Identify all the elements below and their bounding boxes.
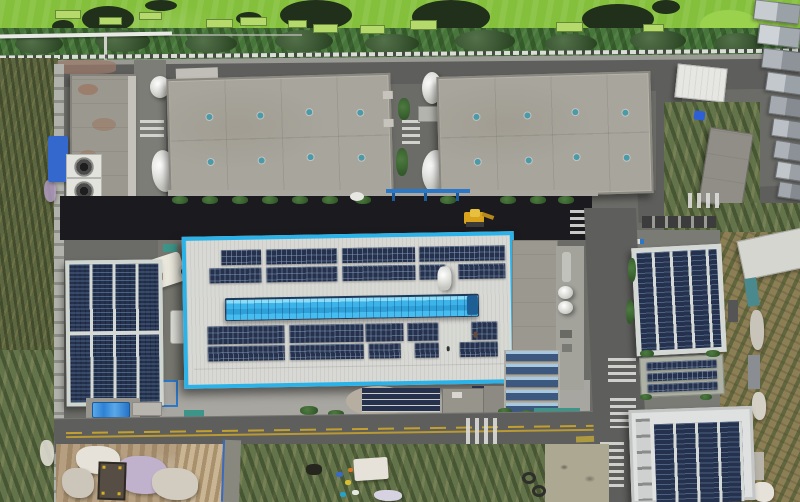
pond-dark-patch xyxy=(652,0,680,14)
gantry-crane-leg xyxy=(424,193,427,201)
pond-platform xyxy=(360,25,385,34)
shrub-row xyxy=(262,196,278,204)
tilted-solar-row xyxy=(506,351,558,361)
skylight-vent xyxy=(306,109,312,115)
tarp-covered-pile xyxy=(62,468,94,498)
skylight-vent xyxy=(622,110,628,116)
tilted-solar-row xyxy=(506,377,558,387)
pond-platform xyxy=(99,17,122,25)
yellow-marker xyxy=(102,466,105,469)
shrub-row xyxy=(500,196,516,204)
pipeline-thin xyxy=(172,34,302,36)
solar-array-row xyxy=(369,343,401,359)
skylight-vent xyxy=(259,157,265,163)
skylight-end-cap xyxy=(467,296,478,315)
round-tank xyxy=(558,286,573,299)
container-roof xyxy=(771,118,800,140)
junk-gray xyxy=(748,355,760,389)
shrub xyxy=(396,148,408,176)
equipment-dark xyxy=(562,344,572,352)
right-low-solar-structure xyxy=(639,354,725,398)
solar-strip xyxy=(647,381,717,392)
roof-vent-box xyxy=(384,119,394,127)
shrub-row xyxy=(172,196,188,204)
aerial-photo-canvas xyxy=(0,0,800,502)
solar-array-row xyxy=(207,325,284,344)
solar-strip xyxy=(646,359,716,370)
shrub xyxy=(626,300,634,324)
cooling-fan-unit xyxy=(66,154,102,178)
annex-roof-central-right xyxy=(512,240,558,352)
round-tank xyxy=(558,301,573,314)
blue-tarp-shelter xyxy=(48,136,68,182)
gantry-crane-leg xyxy=(392,193,395,201)
solar-array-row xyxy=(365,323,403,342)
crosswalk-bottom-road xyxy=(466,418,500,444)
skylight-vent xyxy=(572,109,578,115)
yellow-marker xyxy=(118,466,121,469)
solar-array-row xyxy=(290,344,364,360)
annex-east-wall xyxy=(128,76,136,200)
junk-dark xyxy=(728,300,738,322)
shrub xyxy=(706,350,720,357)
pond-platform xyxy=(556,22,583,32)
roof-seam xyxy=(194,363,506,369)
gantry-crane-leg xyxy=(456,193,459,201)
crosswalk-topright xyxy=(688,193,722,208)
duct xyxy=(562,252,571,282)
satellite-dish xyxy=(350,192,364,201)
skylight-vent xyxy=(574,154,580,160)
crosswalk-right-road xyxy=(608,358,636,384)
solar-array-row xyxy=(208,345,285,361)
white-gatehouse-roof xyxy=(674,63,727,102)
shrub xyxy=(398,98,410,120)
fan-blade-icon xyxy=(74,157,94,177)
debris-dot-cyan xyxy=(340,492,346,497)
pond-platform xyxy=(139,12,162,20)
building-facade xyxy=(636,418,653,500)
pond-platform xyxy=(288,20,307,28)
tree-clump xyxy=(455,30,515,52)
pond-dark-patch xyxy=(145,0,177,11)
skylight-vent xyxy=(307,154,313,160)
shrub xyxy=(640,350,654,357)
skylight-vent xyxy=(624,155,630,161)
shrub-row xyxy=(440,196,456,204)
solar-array-row xyxy=(289,324,363,343)
pond-platform xyxy=(410,20,437,30)
junk-tarp xyxy=(752,392,766,420)
crosswalk-gap-road xyxy=(402,120,420,144)
dumpster-teal xyxy=(163,244,177,252)
white-tarp-square xyxy=(353,457,388,481)
debris-dot-blue xyxy=(336,472,343,477)
solar-array-row xyxy=(221,250,261,266)
tarp-covered-pile xyxy=(152,468,198,500)
central-factory-solar-roof xyxy=(182,231,517,389)
tilted-solar-row xyxy=(506,390,558,400)
coil-ring xyxy=(532,485,546,497)
solar-strip xyxy=(647,370,717,381)
skylight-vent xyxy=(475,159,481,165)
roof-chimney-white xyxy=(437,266,451,290)
solar-array-row xyxy=(458,263,505,279)
tree-clump xyxy=(630,30,686,51)
warehouse-roof-right xyxy=(436,71,653,199)
solar-panel-columns xyxy=(636,249,721,351)
skylight-vent xyxy=(526,157,532,163)
white-shed xyxy=(132,402,162,416)
debris-dot-white xyxy=(352,490,359,495)
solar-array-row xyxy=(415,342,439,357)
gate-fence xyxy=(642,216,716,228)
pond-platform xyxy=(240,17,267,26)
solar-array-row xyxy=(342,247,415,263)
skylight-vent xyxy=(473,114,479,120)
tilted-solar-rack-group xyxy=(504,350,560,416)
coil-ring xyxy=(522,472,536,484)
junk-tarp xyxy=(750,310,764,350)
shrub-row xyxy=(202,196,218,204)
shrub-row xyxy=(530,196,546,204)
solar-array-row xyxy=(266,248,337,264)
skylight-vent xyxy=(208,159,214,165)
shrub xyxy=(700,394,712,400)
pond-platform xyxy=(206,19,233,28)
shrub-row xyxy=(322,196,338,204)
service-path-blue-edge xyxy=(221,440,241,502)
debris-dot-yellow xyxy=(345,480,351,485)
container-roof xyxy=(773,140,800,162)
pond-platform xyxy=(313,24,338,33)
skylight-vent xyxy=(359,155,365,161)
solar-array-row xyxy=(407,322,438,341)
white-bin xyxy=(452,392,462,398)
worker-figure xyxy=(447,346,450,351)
rubble-pile xyxy=(545,444,609,502)
solar-array-row xyxy=(419,245,505,261)
shrub xyxy=(628,258,636,282)
debris-pit xyxy=(306,464,322,475)
roof-vent-box xyxy=(383,91,393,99)
shrub-row xyxy=(558,196,574,204)
crosswalk-left-road xyxy=(140,120,164,138)
pond-platform xyxy=(55,10,81,19)
shrub-row xyxy=(232,196,248,204)
blue-canopy xyxy=(92,402,130,418)
reed-marsh-left xyxy=(0,58,58,354)
skylight-vent xyxy=(524,112,530,118)
roof-rust-stain xyxy=(78,84,98,95)
skylight-vent xyxy=(257,112,263,118)
shrub xyxy=(640,394,652,400)
tarp-purple-debris xyxy=(44,180,56,202)
tarp-debris xyxy=(40,440,54,466)
dark-shed xyxy=(97,462,126,501)
right-solar-building-lower xyxy=(628,406,755,502)
ground-solar-array xyxy=(362,388,440,412)
light-tarp xyxy=(374,490,402,501)
worker-figure xyxy=(473,332,477,338)
solar-array-row xyxy=(342,265,415,281)
skylight-vent xyxy=(357,110,363,116)
pond-platform xyxy=(643,24,664,32)
shrub xyxy=(300,406,318,415)
container-roof xyxy=(768,95,800,119)
skylight-vent xyxy=(206,114,212,120)
warehouse-roof-left xyxy=(166,73,393,203)
roof-rust-stain xyxy=(92,118,116,131)
tree-clump xyxy=(185,34,237,53)
tilted-solar-row xyxy=(506,364,558,374)
scrub-left-lower xyxy=(0,350,58,502)
left-solar-building xyxy=(65,259,164,406)
solar-panel-columns xyxy=(654,421,745,502)
tree-clump xyxy=(365,34,419,53)
debris-dot-orange xyxy=(348,468,353,472)
yellow-marker xyxy=(118,492,121,495)
yellow-marker xyxy=(102,492,105,495)
solar-array-row xyxy=(460,341,498,357)
container-roof xyxy=(765,71,800,95)
shrub-row xyxy=(292,196,308,204)
equipment-dark xyxy=(560,330,572,338)
right-solar-building-upper xyxy=(631,244,727,357)
container-roof xyxy=(775,161,800,182)
solar-array-row xyxy=(209,268,261,284)
blue-skylight-monitor xyxy=(225,294,479,321)
excavator-cab xyxy=(470,209,480,217)
solar-array-row xyxy=(266,266,337,282)
excavator-tracks xyxy=(466,222,484,227)
blue-truck xyxy=(693,110,705,120)
